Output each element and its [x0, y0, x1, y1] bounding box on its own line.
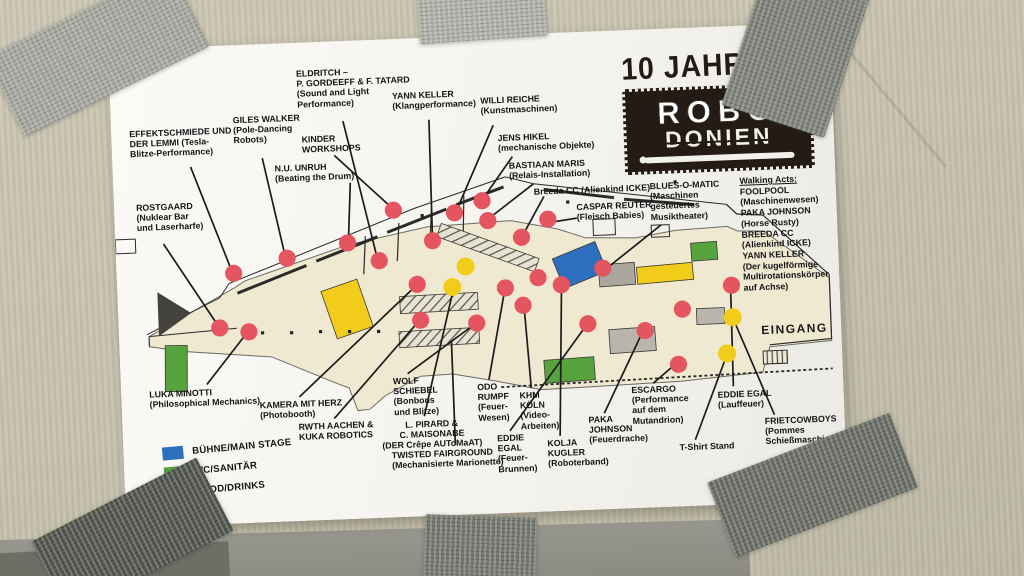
map-label-luka-minotti: LUKA MINOTTI (Philosophical Mechanics): [149, 385, 260, 410]
map-label-caspar-reuter: CASPAR REUTER (Fleisch Babies): [576, 199, 652, 222]
walking-acts-list: Walking Acts: FOOLPOOL (Maschinenwesen) …: [739, 172, 837, 293]
map-label-eddie-egal-brunnen: EDDIE EGAL (Feuer- Brunnen): [497, 432, 538, 474]
entrance-label: EINGANG: [761, 321, 828, 338]
map-label-bastiaan-maris: BASTIAAN MARIS (Relais-Installation): [509, 158, 591, 182]
map-label-breeda-cc: Breeda CC (Alienkind ICKE): [534, 182, 651, 197]
map-label-jens-hikel: JENS HIKEL (mechanische Objekte): [497, 129, 594, 153]
map-label-blues-o-matic: BLUES-O-MATIC (Maschinen gesteuertes Mus…: [649, 179, 720, 222]
wall-background: EFFEKTSCHMIEDE UND DER LEMMI (Tesla- Bli…: [0, 0, 1024, 576]
map-label-tshirt-stand: T-Shirt Stand: [679, 440, 734, 452]
walking-acts-body: FOOLPOOL (Maschinenwesen) PAKA JOHNSON (…: [740, 183, 838, 294]
map-label-yann-keller: YANN KELLER (Klangperformance): [392, 88, 476, 112]
map-label-eddie-egal-lauffeuer: EDDIE EGAL (Lauffeuer): [717, 388, 772, 410]
map-label-kinder-workshops: KINDER WORKSHOPS: [301, 132, 360, 155]
map-label-rostgaard: ROSTGAARD (Nuklear Bar und Laserharfe): [136, 200, 204, 233]
tape-bottom-center: [423, 514, 538, 576]
map-label-twisted-fairground: TWISTED FAIRGROUND (Mechanisierte Marion…: [392, 446, 504, 471]
map-label-odo-rumpf: ODO RUMPF (Feuer- Wesen): [477, 381, 510, 423]
logo-bar: [645, 152, 795, 164]
map-label-effektschmiede: EFFEKTSCHMIEDE UND DER LEMMI (Tesla- Bli…: [129, 125, 232, 160]
map-label-giles-walker: GILES WALKER (Pole-Dancing Robots): [233, 113, 301, 146]
map-label-kamera-mit-herz: KAMERA MIT HERZ (Photobooth): [260, 397, 343, 421]
map-label-willi-reiche: WILLI REICHE (Kunstmaschinen): [480, 93, 557, 116]
map-label-khm-koeln: KHM KÖLN (Video- Arbeiten): [519, 389, 559, 431]
map-label-rwth-aachen: RWTH AACHEN & KUKA ROBOTICS: [298, 419, 374, 442]
map-label-wolf-schiebel: WOLF SCHIEBEL (Bonbons und Blitze): [393, 375, 440, 418]
map-label-escargo: ESCARGO (Performance auf dem Mutandrion): [631, 383, 689, 426]
map-label-nu-unruh: N.U. UNRUH (Beating the Drum): [274, 161, 354, 184]
stage-color-swatch: [162, 446, 184, 461]
logo-donien-text: DONIEN: [665, 125, 773, 152]
